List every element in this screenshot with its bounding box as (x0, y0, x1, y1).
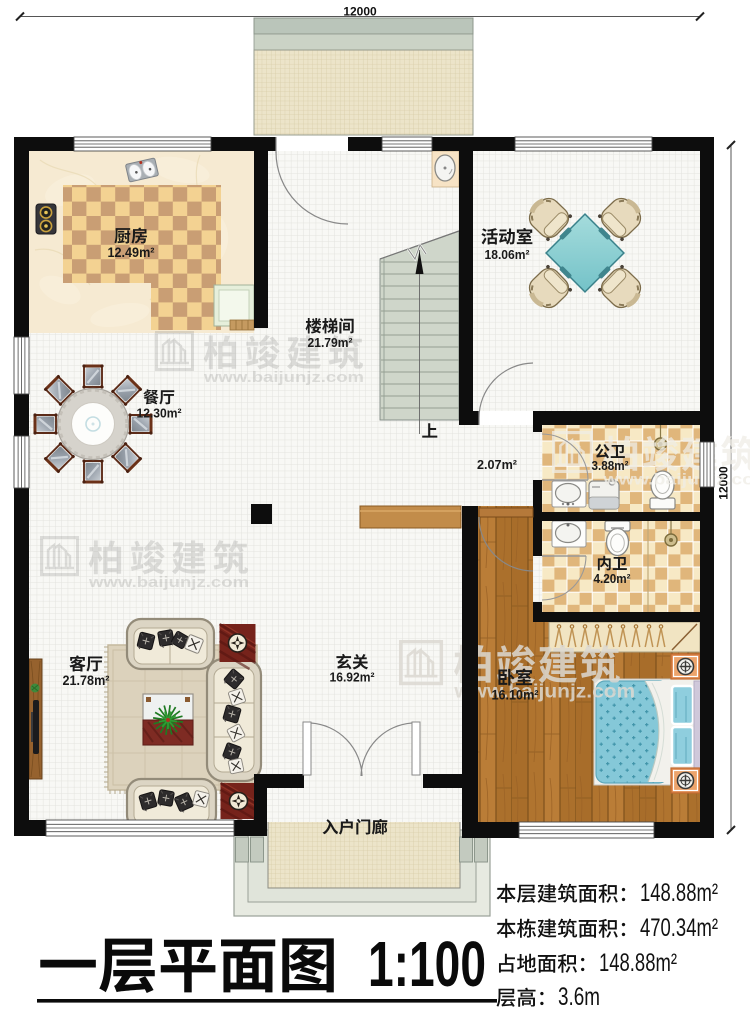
svg-text:2.07m²: 2.07m² (477, 457, 518, 472)
svg-text:12.49m²: 12.49m² (108, 245, 155, 260)
svg-text:18.06m²: 18.06m² (485, 247, 531, 262)
svg-text:470.34m²: 470.34m² (640, 914, 718, 942)
svg-text:3.88m²: 3.88m² (592, 459, 629, 473)
svg-text:16.92m²: 16.92m² (330, 670, 376, 685)
svg-text:www.baijunjz.com: www.baijunjz.com (453, 682, 635, 703)
svg-text:12.30m²: 12.30m² (137, 406, 183, 421)
svg-text:148.88m²: 148.88m² (599, 949, 677, 977)
svg-text:12000: 12000 (343, 5, 377, 19)
svg-text:1:100: 1:100 (368, 928, 486, 1000)
svg-text:3.6m: 3.6m (558, 983, 600, 1011)
svg-text:www.baijunjz.com: www.baijunjz.com (203, 370, 364, 386)
svg-text:16.10m²: 16.10m² (492, 688, 539, 703)
svg-text:www.baijunjz.com: www.baijunjz.com (88, 575, 249, 591)
svg-text:148.88m²: 148.88m² (640, 879, 718, 907)
svg-text:21.79m²: 21.79m² (308, 335, 354, 350)
svg-text:21.78m²: 21.78m² (63, 673, 110, 688)
svg-text:4.20m²: 4.20m² (594, 572, 631, 586)
svg-text:www.baijunjz.com: www.baijunjz.com (602, 472, 750, 489)
